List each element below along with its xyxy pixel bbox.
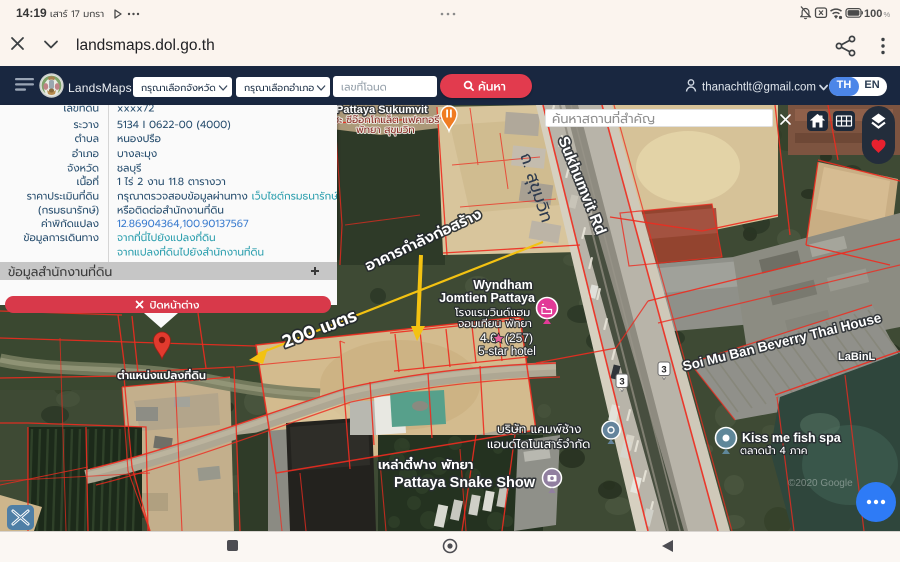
svg-text:Jomtien Pattaya: Jomtien Pattaya — [439, 291, 536, 305]
svg-text:©2020 Google: ©2020 Google — [788, 478, 853, 489]
svg-text:5-star hotel: 5-star hotel — [478, 346, 536, 358]
svg-text:Pattaya Snake Show: Pattaya Snake Show — [394, 475, 536, 491]
svg-text:thanachtlt@gmail.com: thanachtlt@gmail.com — [702, 82, 816, 94]
svg-text:(257): (257) — [505, 331, 533, 345]
svg-text:3: 3 — [661, 365, 666, 376]
svg-text:%: % — [884, 10, 891, 19]
svg-text:Kiss me fish spa: Kiss me fish spa — [742, 431, 842, 445]
svg-text:Wyndham: Wyndham — [473, 278, 533, 292]
svg-text:Pattaya Sukumvit: Pattaya Sukumvit — [336, 105, 428, 116]
svg-text:3: 3 — [619, 377, 624, 388]
svg-text:LaBinL: LaBinL — [838, 351, 876, 363]
svg-text:100: 100 — [864, 8, 882, 20]
